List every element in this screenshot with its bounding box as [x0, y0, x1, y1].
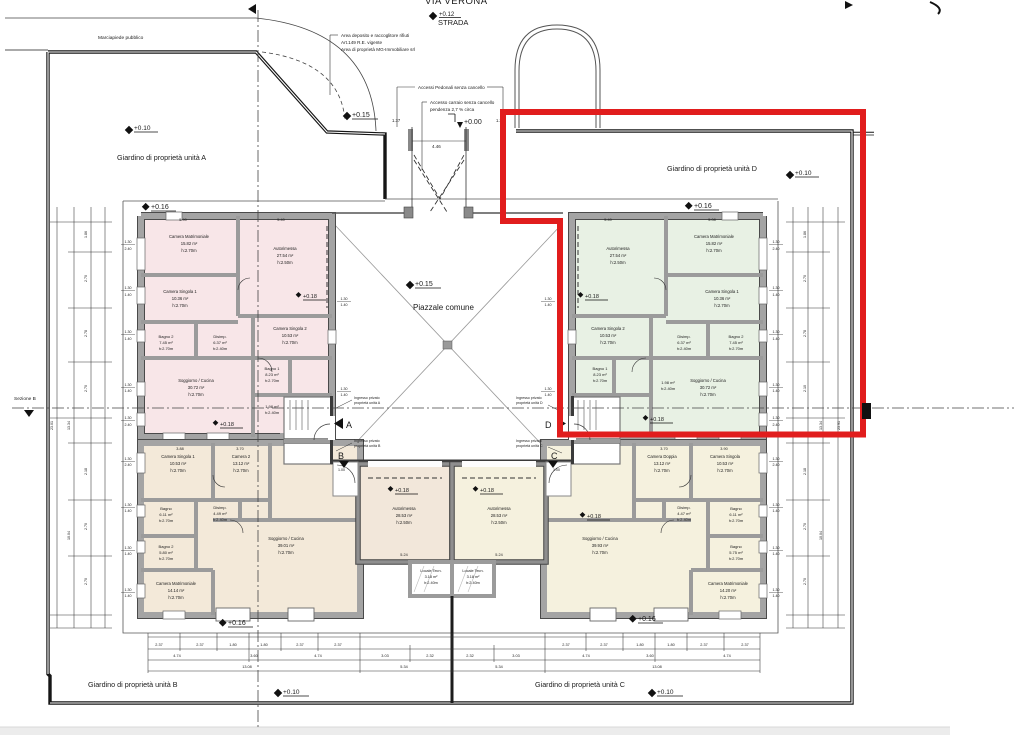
svg-text:STRADA: STRADA	[438, 18, 468, 27]
svg-text:Camera Doppia: Camera Doppia	[647, 454, 677, 459]
svg-text:1.00: 1.00	[338, 468, 345, 472]
svg-text:5.08: 5.08	[708, 218, 715, 222]
svg-text:1.40: 1.40	[545, 393, 552, 397]
svg-text:Giardino di proprietà unità C: Giardino di proprietà unità C	[535, 680, 625, 689]
svg-text:28.53 m²: 28.53 m²	[396, 513, 413, 518]
svg-text:5.40: 5.40	[277, 218, 284, 222]
svg-text:A: A	[346, 420, 352, 430]
svg-text:5.34: 5.34	[495, 665, 502, 669]
svg-text:1.40: 1.40	[773, 509, 780, 513]
svg-text:10.53 m²: 10.53 m²	[600, 333, 617, 338]
svg-text:2.70: 2.70	[803, 578, 807, 585]
svg-text:proprietà unità B: proprietà unità B	[354, 444, 381, 448]
svg-text:15.82 m²: 15.82 m²	[706, 241, 723, 246]
svg-text:h:2.40m: h:2.40m	[265, 410, 280, 415]
svg-text:3.60: 3.60	[646, 654, 653, 658]
svg-text:Bagno 1: Bagno 1	[593, 366, 609, 371]
svg-text:1.40: 1.40	[545, 303, 552, 307]
svg-text:1.30: 1.30	[773, 383, 780, 387]
svg-text:Bagno 1: Bagno 1	[265, 366, 281, 371]
svg-text:14.20 m²: 14.20 m²	[720, 588, 737, 593]
svg-text:Soggiorno / Cucina: Soggiorno / Cucina	[268, 536, 304, 541]
svg-text:1.00: 1.00	[553, 468, 560, 472]
svg-text:3.18 m²: 3.18 m²	[425, 575, 439, 579]
svg-text:1.40: 1.40	[773, 552, 780, 556]
svg-text:3.60: 3.60	[250, 654, 257, 658]
svg-text:1.30: 1.30	[773, 330, 780, 334]
svg-text:+0.16: +0.16	[638, 616, 656, 623]
svg-text:2.40: 2.40	[773, 423, 780, 427]
svg-text:3.88: 3.88	[176, 447, 183, 451]
svg-text:13.12 m²: 13.12 m²	[654, 461, 671, 466]
svg-text:+0.10: +0.10	[795, 170, 812, 177]
svg-text:D: D	[545, 420, 552, 430]
svg-text:1.30: 1.30	[125, 416, 132, 420]
svg-text:h:2.70m: h:2.70m	[181, 248, 197, 253]
svg-text:Disimp.: Disimp.	[213, 505, 226, 510]
svg-text:2.70: 2.70	[803, 523, 807, 530]
svg-text:1.30: 1.30	[545, 297, 552, 301]
svg-text:3.70: 3.70	[660, 447, 667, 451]
svg-text:Disimp.: Disimp.	[677, 334, 690, 339]
svg-text:Art.149 R.E. vigente: Art.149 R.E. vigente	[341, 40, 383, 45]
svg-text:+0.10: +0.10	[657, 689, 674, 696]
svg-text:h:2.70m: h:2.70m	[593, 378, 608, 383]
svg-text:Disimp.: Disimp.	[213, 334, 226, 339]
svg-text:Ingresso privato: Ingresso privato	[516, 396, 542, 400]
svg-text:10.36 m²: 10.36 m²	[714, 296, 731, 301]
svg-text:+0.18: +0.18	[395, 488, 409, 494]
svg-text:3.18 m²: 3.18 m²	[467, 575, 481, 579]
svg-text:3.03: 3.03	[512, 654, 519, 658]
svg-text:Camera Matrimoniale: Camera Matrimoniale	[169, 234, 210, 239]
svg-text:+0.18: +0.18	[650, 417, 664, 423]
svg-text:1.30: 1.30	[773, 457, 780, 461]
svg-text:1.80: 1.80	[667, 643, 674, 647]
svg-text:+0.16: +0.16	[694, 203, 712, 210]
svg-text:1.80: 1.80	[260, 643, 267, 647]
svg-text:+0.18: +0.18	[480, 488, 494, 494]
svg-text:2.37: 2.37	[700, 643, 707, 647]
svg-text:4.74: 4.74	[723, 654, 730, 658]
svg-text:Camera Matrimoniale: Camera Matrimoniale	[694, 234, 735, 239]
svg-text:5.24: 5.24	[495, 553, 502, 557]
svg-text:h:2.70m: h:2.70m	[159, 346, 174, 351]
svg-text:23.01: 23.01	[50, 421, 54, 430]
svg-text:6.11 m²: 6.11 m²	[729, 512, 743, 517]
svg-text:3.90: 3.90	[720, 447, 727, 451]
svg-text:Soggiorno / Cucina: Soggiorno / Cucina	[582, 536, 618, 541]
svg-text:5.75 m²: 5.75 m²	[729, 550, 743, 555]
svg-text:1.30: 1.30	[125, 503, 132, 507]
svg-text:1.30: 1.30	[125, 286, 132, 290]
svg-text:+0.16: +0.16	[151, 204, 169, 211]
svg-text:1.30: 1.30	[773, 416, 780, 420]
svg-text:10.53 m²: 10.53 m²	[170, 461, 187, 466]
svg-text:pendenza 2,7 % circa: pendenza 2,7 % circa	[430, 107, 475, 112]
svg-text:1.37: 1.37	[392, 118, 401, 123]
svg-text:30.72 m²: 30.72 m²	[188, 385, 205, 390]
svg-text:Bagno: Bagno	[730, 544, 742, 549]
svg-text:2.40: 2.40	[125, 247, 132, 251]
svg-text:1.30: 1.30	[773, 588, 780, 592]
svg-text:Camera Matrimoniale: Camera Matrimoniale	[708, 581, 749, 586]
svg-text:Marciapiede pubblico: Marciapiede pubblico	[98, 35, 144, 41]
svg-text:h:2.70m: h:2.70m	[717, 468, 733, 473]
svg-text:h:2.70m: h:2.70m	[159, 518, 174, 523]
svg-text:2.70: 2.70	[84, 523, 88, 530]
svg-text:+0.10: +0.10	[283, 689, 300, 696]
svg-text:Camera Singola 1: Camera Singola 1	[161, 454, 195, 459]
svg-text:1.30: 1.30	[341, 297, 348, 301]
svg-text:h:2.70m: h:2.70m	[233, 468, 249, 473]
svg-text:4.74: 4.74	[314, 654, 321, 658]
svg-text:2.37: 2.37	[741, 643, 748, 647]
svg-text:4.46: 4.46	[432, 144, 441, 149]
svg-text:4.49 m²: 4.49 m²	[213, 511, 227, 516]
svg-text:h:2.40m: h:2.40m	[677, 346, 692, 351]
svg-text:Ingresso privato: Ingresso privato	[354, 396, 380, 400]
svg-text:13.34: 13.34	[819, 421, 823, 430]
svg-text:1.30: 1.30	[545, 387, 552, 391]
svg-text:13.34: 13.34	[67, 421, 71, 430]
svg-text:h:2.70m: h:2.70m	[170, 468, 186, 473]
svg-text:2.37: 2.37	[196, 643, 203, 647]
svg-text:5.40: 5.40	[604, 218, 611, 222]
svg-text:15.82 m²: 15.82 m²	[181, 241, 198, 246]
svg-text:+0.18: +0.18	[587, 514, 601, 520]
svg-text:7.45 m²: 7.45 m²	[159, 340, 173, 345]
svg-text:1.40: 1.40	[125, 293, 132, 297]
svg-text:4.74: 4.74	[173, 654, 180, 658]
svg-text:1.30: 1.30	[125, 330, 132, 334]
svg-text:C: C	[551, 451, 558, 461]
svg-text:+0.10: +0.10	[134, 125, 151, 132]
svg-text:h:2.70m: h:2.70m	[282, 340, 298, 345]
svg-text:Ingresso privato: Ingresso privato	[516, 439, 542, 443]
svg-text:+0.18: +0.18	[220, 422, 234, 428]
svg-text:Disimp.: Disimp.	[677, 505, 690, 510]
svg-text:2.70: 2.70	[84, 578, 88, 585]
svg-text:5.24: 5.24	[400, 553, 407, 557]
svg-text:h:2.70m: h:2.70m	[706, 248, 722, 253]
svg-text:1.40: 1.40	[773, 594, 780, 598]
svg-text:h:2.70m: h:2.70m	[278, 550, 294, 555]
svg-text:6.37 m²: 6.37 m²	[213, 340, 227, 345]
svg-text:VIA VERONA: VIA VERONA	[425, 0, 488, 7]
svg-text:4.74: 4.74	[582, 654, 589, 658]
svg-text:h:2.40m: h:2.40m	[424, 581, 438, 585]
svg-text:1.30: 1.30	[773, 546, 780, 550]
svg-text:1.80: 1.80	[636, 643, 643, 647]
svg-text:h:2.40m: h:2.40m	[677, 517, 692, 522]
svg-text:+0.16: +0.16	[228, 620, 246, 627]
svg-text:1.40: 1.40	[773, 293, 780, 297]
svg-text:h:2.70m: h:2.70m	[729, 556, 744, 561]
svg-text:Autorimessa: Autorimessa	[487, 506, 511, 511]
svg-text:Area di proprietà MG-Immobilia: Area di proprietà MG-Immobiliare srl	[341, 47, 415, 52]
svg-text:2.37: 2.37	[296, 643, 303, 647]
svg-text:Piazzale comune: Piazzale comune	[413, 303, 474, 312]
svg-text:1.40: 1.40	[125, 594, 132, 598]
svg-text:1.40: 1.40	[125, 337, 132, 341]
svg-text:2.32: 2.32	[426, 654, 433, 658]
svg-text:Bagno 2: Bagno 2	[159, 334, 175, 339]
svg-text:2.37: 2.37	[334, 643, 341, 647]
svg-text:14.14 m²: 14.14 m²	[168, 588, 185, 593]
svg-text:Giardino di proprietà unità B: Giardino di proprietà unità B	[88, 680, 178, 689]
svg-text:+0.18: +0.18	[585, 294, 599, 300]
svg-text:1.40: 1.40	[341, 393, 348, 397]
svg-text:Sezione B: Sezione B	[14, 396, 36, 402]
svg-text:1.86: 1.86	[84, 231, 88, 238]
svg-text:13.08: 13.08	[242, 665, 252, 669]
svg-text:1.40: 1.40	[125, 509, 132, 513]
svg-text:3.70: 3.70	[236, 447, 243, 451]
svg-text:2.32: 2.32	[466, 654, 473, 658]
svg-text:Camera Singola 1: Camera Singola 1	[163, 289, 197, 294]
svg-text:Giardino di proprietà unità A: Giardino di proprietà unità A	[117, 153, 206, 162]
svg-text:h:2.70m: h:2.70m	[729, 518, 744, 523]
svg-text:2.70: 2.70	[84, 275, 88, 282]
svg-text:10.53 m²: 10.53 m²	[717, 461, 734, 466]
svg-text:Giardino di proprietà unità D: Giardino di proprietà unità D	[667, 164, 757, 173]
svg-text:1.30: 1.30	[773, 240, 780, 244]
svg-text:10.36 m²: 10.36 m²	[172, 296, 189, 301]
svg-text:Autorimessa: Autorimessa	[273, 246, 297, 251]
svg-text:proprietà unità D: proprietà unità D	[516, 401, 543, 405]
svg-text:B: B	[338, 451, 344, 461]
svg-text:2.40: 2.40	[125, 463, 132, 467]
svg-text:+0.00: +0.00	[464, 119, 482, 126]
svg-text:h:2.70m: h:2.70m	[714, 303, 730, 308]
svg-text:h:2.40m: h:2.40m	[466, 581, 480, 585]
svg-text:h:2.50m: h:2.50m	[610, 260, 626, 265]
svg-text:2.78: 2.78	[84, 330, 88, 337]
svg-text:2.18: 2.18	[803, 468, 807, 475]
svg-text:3.03: 3.03	[381, 654, 388, 658]
svg-text:1.30: 1.30	[125, 457, 132, 461]
svg-text:Area deposito e raccoglitore r: Area deposito e raccoglitore rifiuti	[341, 33, 409, 38]
svg-text:proprietà unità A: proprietà unità A	[354, 401, 381, 405]
svg-text:2.70: 2.70	[84, 385, 88, 392]
svg-text:Bagno 2: Bagno 2	[729, 334, 745, 339]
svg-text:1.30: 1.30	[125, 588, 132, 592]
svg-text:Autorimessa: Autorimessa	[606, 246, 630, 251]
svg-text:27.54 m²: 27.54 m²	[610, 253, 627, 258]
svg-text:Camera 2: Camera 2	[232, 454, 251, 459]
svg-text:h:2.70m: h:2.70m	[168, 595, 184, 600]
svg-text:39.01 m²: 39.01 m²	[278, 543, 295, 548]
svg-text:23.91: 23.91	[837, 421, 841, 430]
svg-text:2.10: 2.10	[803, 385, 807, 392]
svg-text:h:2.40m: h:2.40m	[213, 517, 228, 522]
svg-text:Camera Singola 2: Camera Singola 2	[273, 326, 307, 331]
svg-text:Soggiorno / Cucina: Soggiorno / Cucina	[690, 378, 726, 383]
svg-text:2.40: 2.40	[125, 423, 132, 427]
svg-text:8.23 m²: 8.23 m²	[265, 372, 279, 377]
svg-text:Ingresso privato: Ingresso privato	[354, 439, 380, 443]
svg-text:h:2.70m: h:2.70m	[600, 340, 616, 345]
svg-text:4.47 m²: 4.47 m²	[677, 511, 691, 516]
svg-text:1.30: 1.30	[125, 383, 132, 387]
svg-text:Camera Singola 1: Camera Singola 1	[705, 289, 739, 294]
svg-text:h:2.70m: h:2.70m	[188, 392, 204, 397]
svg-text:10.04: 10.04	[67, 531, 71, 540]
svg-text:h:2.40m: h:2.40m	[213, 346, 228, 351]
svg-text:2.70: 2.70	[803, 275, 807, 282]
svg-text:h:2.70m: h:2.70m	[159, 556, 174, 561]
svg-text:1.86: 1.86	[803, 231, 807, 238]
svg-text:39.93 m²: 39.93 m²	[592, 543, 609, 548]
svg-text:6.11 m²: 6.11 m²	[159, 512, 173, 517]
svg-text:1.30: 1.30	[773, 286, 780, 290]
svg-text:1.40: 1.40	[341, 303, 348, 307]
svg-text:1.40: 1.40	[125, 389, 132, 393]
svg-text:+0.15: +0.15	[415, 281, 433, 288]
svg-text:Accessi Pedonali senza cancell: Accessi Pedonali senza cancello	[418, 85, 485, 90]
svg-text:+0.18: +0.18	[303, 294, 317, 300]
svg-text:Autorimessa: Autorimessa	[392, 506, 416, 511]
svg-text:2.37: 2.37	[600, 643, 607, 647]
svg-text:h:2.50m: h:2.50m	[396, 520, 412, 525]
svg-text:Accesso carraio senza cancello: Accesso carraio senza cancello	[430, 100, 495, 105]
svg-text:1.40: 1.40	[773, 337, 780, 341]
svg-text:Bagno: Bagno	[160, 506, 172, 511]
svg-text:13.12 m²: 13.12 m²	[233, 461, 250, 466]
svg-text:h:2.70m: h:2.70m	[729, 346, 744, 351]
svg-text:30.72 m²: 30.72 m²	[700, 385, 717, 390]
svg-text:proprietà unità C: proprietà unità C	[516, 444, 543, 448]
svg-text:1.30: 1.30	[341, 387, 348, 391]
svg-text:Camera Singola: Camera Singola	[710, 454, 741, 459]
svg-text:Bagno: Bagno	[730, 506, 742, 511]
svg-text:+0.15: +0.15	[352, 112, 370, 119]
svg-text:h:2.70m: h:2.70m	[265, 378, 280, 383]
svg-text:Bagno 2: Bagno 2	[159, 544, 175, 549]
svg-text:5.34: 5.34	[400, 665, 407, 669]
svg-text:Camera Matrimoniale: Camera Matrimoniale	[156, 581, 197, 586]
svg-text:h:2.50m: h:2.50m	[491, 520, 507, 525]
svg-text:1.30: 1.30	[125, 240, 132, 244]
svg-text:h:2.50m: h:2.50m	[277, 260, 293, 265]
svg-text:1.40: 1.40	[773, 389, 780, 393]
svg-text:h:2.70m: h:2.70m	[654, 468, 670, 473]
svg-text:2.78: 2.78	[803, 330, 807, 337]
svg-text:Locale Tecn.: Locale Tecn.	[462, 569, 483, 573]
svg-text:h:2.40m: h:2.40m	[661, 386, 676, 391]
svg-text:h:2.70m: h:2.70m	[700, 392, 716, 397]
svg-text:6.37 m²: 6.37 m²	[677, 340, 691, 345]
svg-text:10.04: 10.04	[819, 531, 823, 540]
svg-text:h:2.70m: h:2.70m	[720, 595, 736, 600]
svg-text:1.40: 1.40	[125, 552, 132, 556]
svg-text:1.30: 1.30	[773, 503, 780, 507]
svg-text:5.80 m²: 5.80 m²	[159, 550, 173, 555]
svg-text:7.45 m²: 7.45 m²	[729, 340, 743, 345]
svg-text:8.23 m²: 8.23 m²	[593, 372, 607, 377]
svg-text:2.37: 2.37	[562, 643, 569, 647]
svg-text:5.90: 5.90	[179, 218, 186, 222]
svg-text:Soggiorno / Cucina: Soggiorno / Cucina	[178, 378, 214, 383]
svg-text:10.53 m²: 10.53 m²	[282, 333, 299, 338]
svg-text:13.08: 13.08	[652, 665, 662, 669]
svg-text:Locale Tecn.: Locale Tecn.	[420, 569, 441, 573]
svg-text:27.54 m²: 27.54 m²	[277, 253, 294, 258]
svg-text:h:2.70m: h:2.70m	[592, 550, 608, 555]
svg-text:Camera Singola 2: Camera Singola 2	[591, 326, 625, 331]
svg-text:28.53 m²: 28.53 m²	[491, 513, 508, 518]
svg-text:2.40: 2.40	[773, 247, 780, 251]
svg-text:1.98 m²: 1.98 m²	[661, 380, 675, 385]
svg-text:1.30: 1.30	[125, 546, 132, 550]
svg-text:2.18: 2.18	[84, 468, 88, 475]
svg-text:2.40: 2.40	[773, 463, 780, 467]
svg-text:1.80: 1.80	[229, 643, 236, 647]
svg-text:h:2.70m: h:2.70m	[172, 303, 188, 308]
svg-text:2.37: 2.37	[155, 643, 162, 647]
